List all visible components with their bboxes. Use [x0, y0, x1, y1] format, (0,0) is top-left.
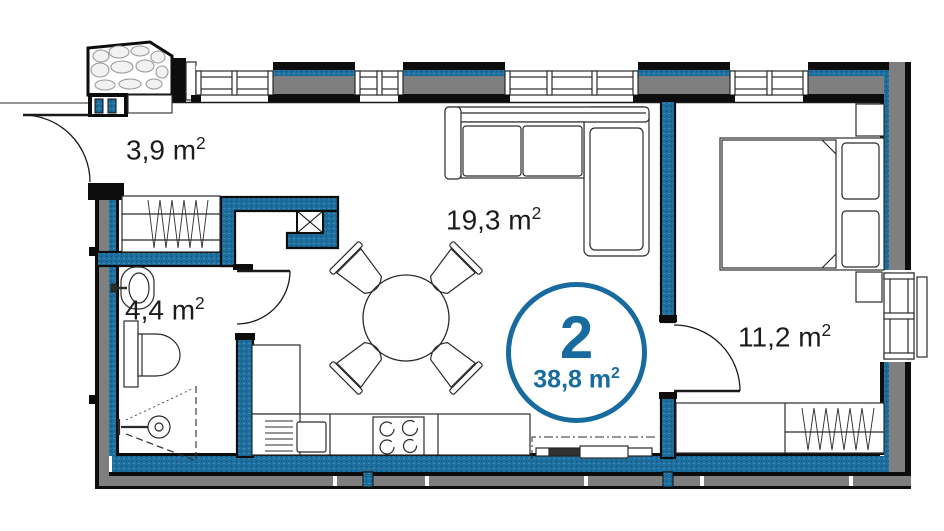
- nightstand-bottom: [856, 272, 882, 302]
- duct-shaft: [297, 211, 323, 233]
- tv-console: [532, 437, 658, 459]
- bedroom-door: [674, 325, 740, 391]
- entry-corner: [0, 42, 172, 117]
- nightstand-top: [856, 104, 884, 136]
- window-2: [355, 66, 403, 101]
- unit-badge: 2 38,8 m2: [506, 282, 647, 423]
- wall-hall-bath: [97, 252, 235, 266]
- shower: [119, 386, 196, 460]
- window-4: [730, 66, 808, 101]
- floor-plan-page: 3,9 m2 19,3 m2 4,4 m2 11,2 m2 2 38,8 m2: [0, 0, 944, 531]
- unit-number: 2: [560, 312, 593, 363]
- dining-chairs: [329, 241, 483, 395]
- furniture: [111, 104, 884, 460]
- right-wall: [878, 62, 927, 489]
- room-label-bedroom: 11,2 m2: [738, 320, 831, 353]
- bathroom-door: [237, 271, 290, 324]
- window-3: [505, 66, 638, 101]
- floor-plan-drawing: [0, 0, 944, 531]
- window-1: [196, 66, 273, 101]
- bedroom-wardrobe: [676, 403, 884, 453]
- wall-living-bedroom-lower: [661, 394, 675, 458]
- room-label-hallway: 3,9 m2: [126, 133, 206, 166]
- hall-wardrobe: [122, 196, 220, 252]
- wall-living-bedroom-upper: [661, 98, 675, 322]
- unit-total-area: 38,8 m2: [533, 365, 619, 394]
- right-window: [878, 270, 927, 362]
- stove: [373, 417, 424, 455]
- room-label-living: 19,3 m2: [446, 203, 541, 236]
- bottom-wall: [95, 453, 911, 489]
- left-wall: [88, 183, 124, 489]
- dining-table: [363, 275, 449, 361]
- room-label-bathroom: 4,4 m2: [125, 293, 205, 326]
- bed: [720, 138, 884, 270]
- toilet: [124, 321, 180, 387]
- entry-shaft: [88, 93, 128, 117]
- entrance-door: [23, 115, 90, 182]
- wall-bath-kitchen: [237, 337, 253, 457]
